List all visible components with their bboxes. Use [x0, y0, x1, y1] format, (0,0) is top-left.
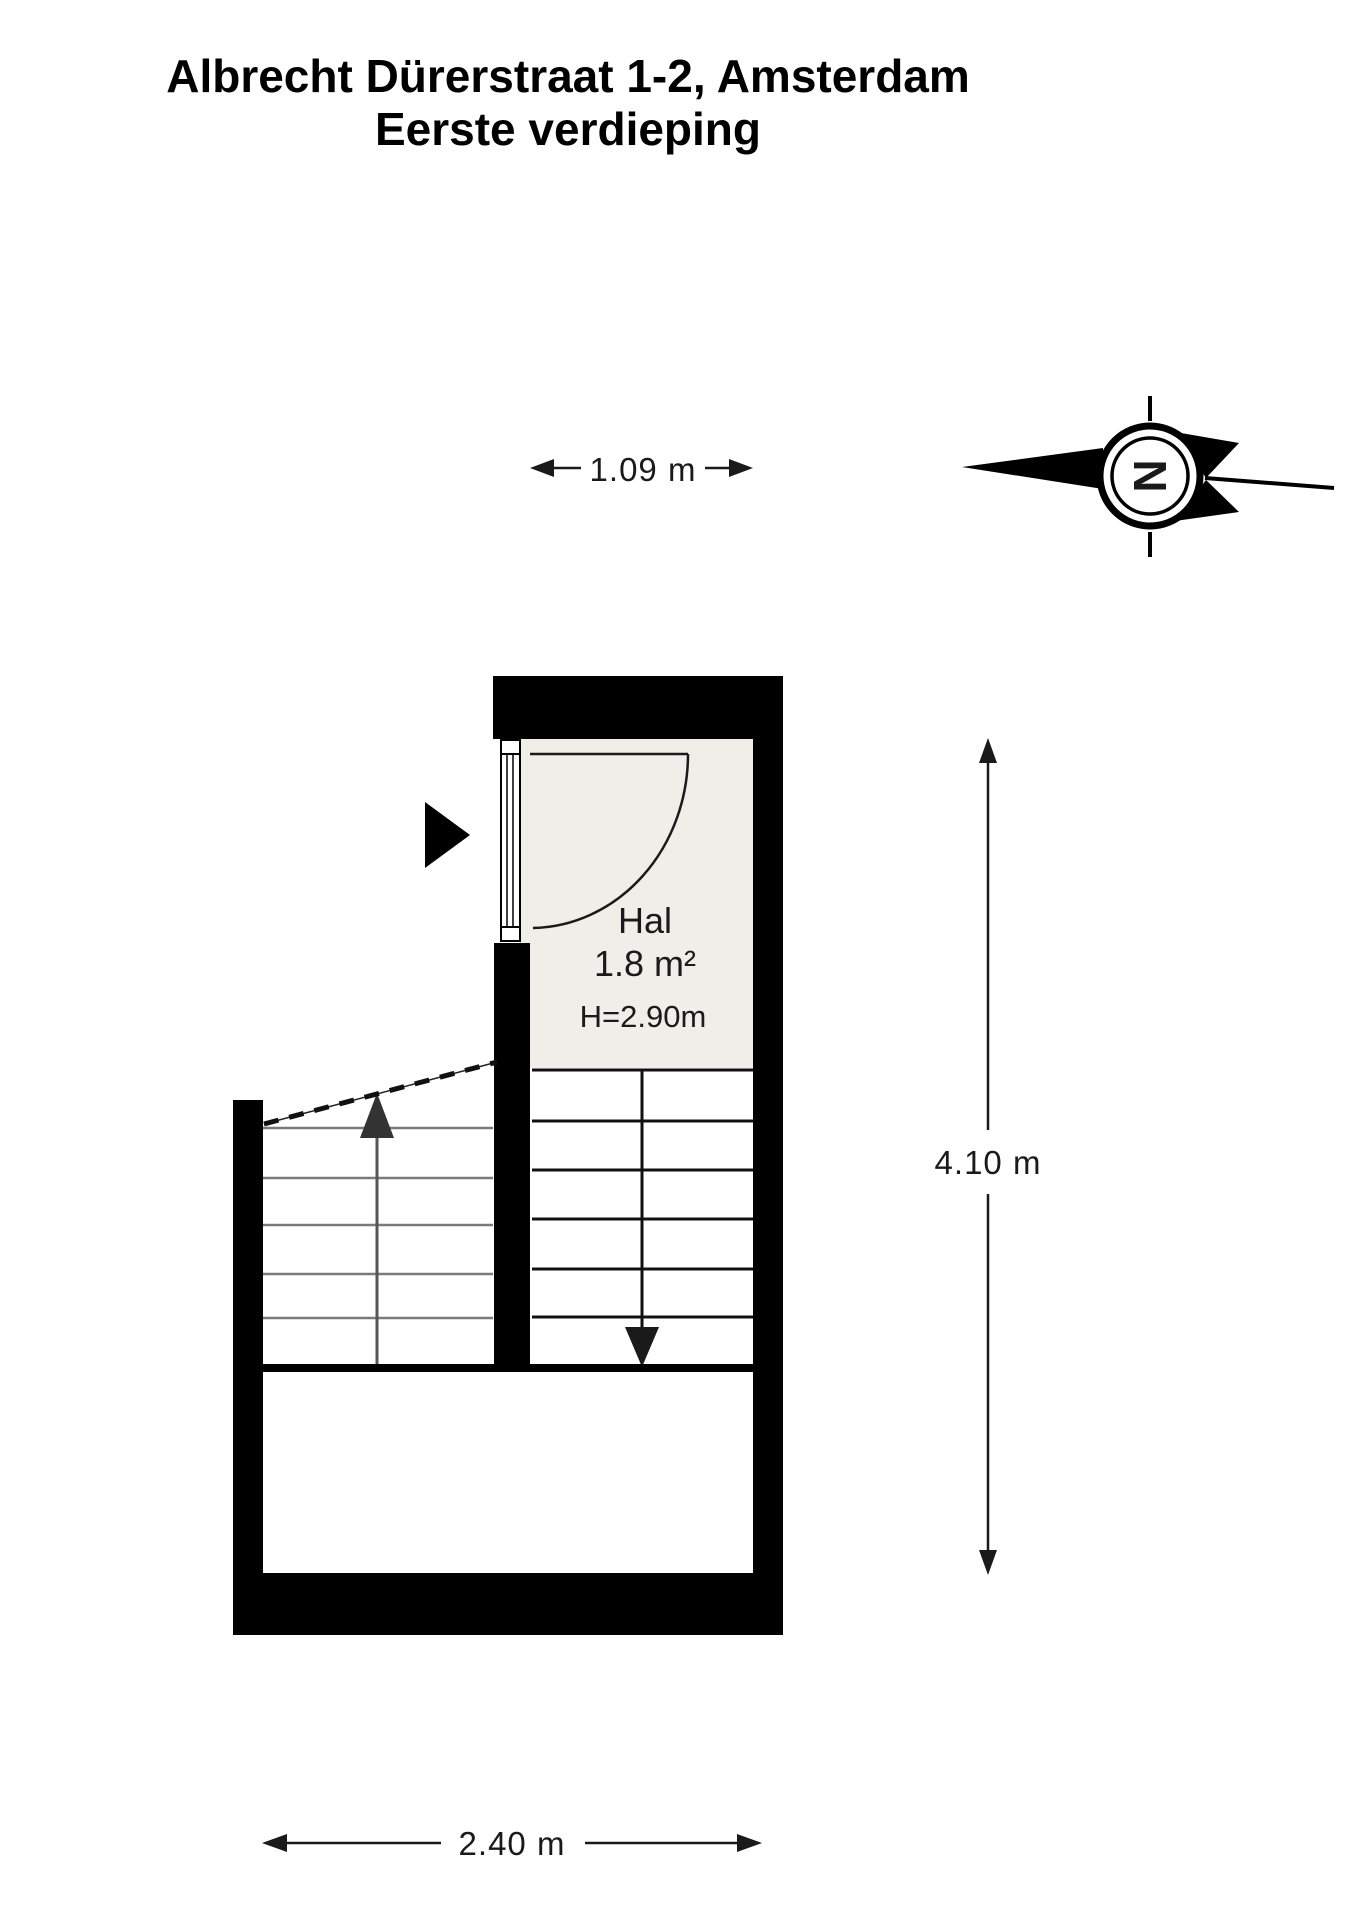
- compass-west-arrow: [962, 448, 1103, 489]
- floorplan-svg: Hal 1.8 m² H=2.90m 1.09 m 4.10 m 2.40: [0, 0, 1358, 1920]
- room-name-label: Hal: [618, 900, 672, 941]
- right-wall: [753, 676, 783, 1635]
- compass-north-letter: N: [1124, 459, 1176, 492]
- compass-needle-line: [1205, 478, 1334, 488]
- dim-arrowhead-bottom: [979, 1550, 997, 1575]
- top-wall: [493, 676, 783, 739]
- dim-arrowhead-left: [262, 1834, 287, 1852]
- stairs-down-arrow-icon: [625, 1327, 659, 1367]
- dim-label-total-height: 4.10 m: [935, 1144, 1042, 1181]
- entrance-arrow-icon: [425, 802, 470, 868]
- dim-arrowhead-right: [737, 1834, 762, 1852]
- room-area-label: 1.8 m²: [594, 943, 696, 984]
- stairs-up-arrow-icon: [360, 1093, 394, 1138]
- entry-window: [501, 740, 520, 941]
- dimension-hall-width: 1.09 m: [530, 451, 753, 488]
- left-wall: [233, 1100, 263, 1635]
- stairs-bottom-edge: [263, 1364, 753, 1372]
- floorplan-page: Albrecht Dürerstraat 1-2, Amsterdam Eers…: [0, 0, 1358, 1920]
- dim-label-hall-width: 1.09 m: [590, 451, 697, 488]
- dim-arrowhead-right: [729, 459, 753, 477]
- compass-north-icon: N: [962, 396, 1334, 557]
- dim-label-total-width: 2.40 m: [459, 1825, 566, 1862]
- bottom-wall: [233, 1573, 783, 1635]
- room-ceiling-height-label: H=2.90m: [580, 999, 707, 1034]
- stairs-left-flight: [263, 1062, 497, 1368]
- middle-wall: [494, 943, 530, 1371]
- dim-arrowhead-left: [530, 459, 554, 477]
- dimension-total-width: 2.40 m: [262, 1825, 762, 1862]
- dimension-total-height: 4.10 m: [935, 738, 1042, 1575]
- window-frame: [501, 740, 520, 941]
